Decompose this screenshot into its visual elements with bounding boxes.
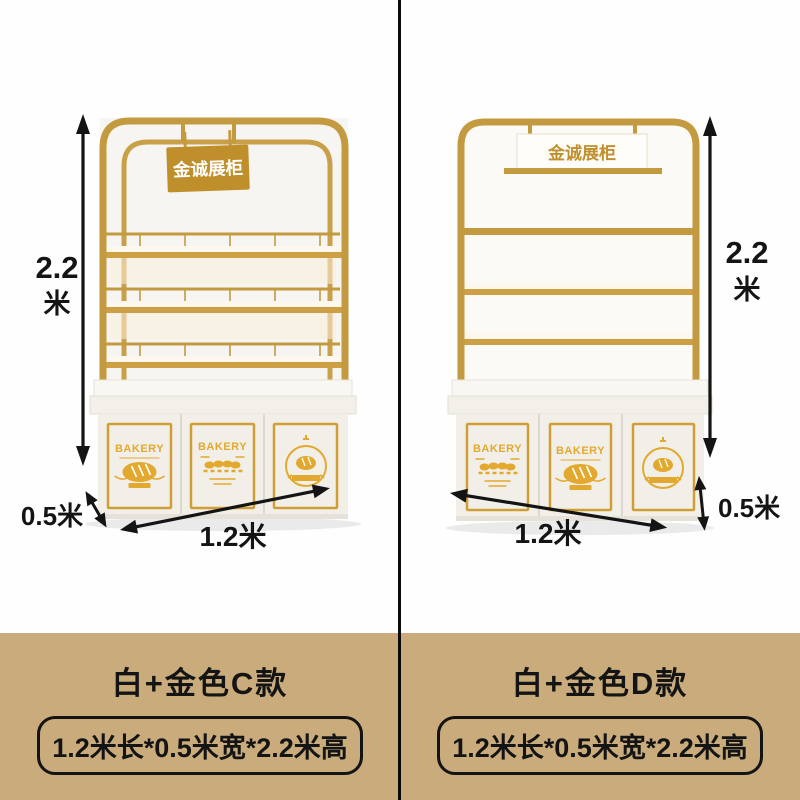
bakery-logo-text: BAKERY (198, 441, 247, 453)
spec-pill-d: 1.2米长*0.5米宽*2.2米高 (437, 716, 763, 775)
depth-dimension: 0.5米 (693, 475, 780, 531)
caption-style-d: 白+金色D款 1.2米长*0.5米宽*2.2米高 (400, 633, 800, 800)
height-value-label: 2.2 (35, 250, 78, 285)
style-title-c: 白+金色C款 (112, 658, 289, 703)
bakery-logo-text: BAKERY (473, 443, 522, 455)
spec-pill-c: 1.2米长*0.5米宽*2.2米高 (37, 716, 363, 775)
brand-sign-text: 金诚展柜 (547, 143, 616, 163)
display-shelf-style-d: 金诚展柜 BAKERY (400, 0, 800, 633)
display-shelf-style-c: 金诚展柜 BAKERY (0, 0, 400, 633)
shelf-tier-1 (461, 228, 696, 235)
width-label: 1.2米 (515, 518, 582, 549)
spec-text-c: 1.2米长*0.5米宽*2.2米高 (52, 733, 348, 763)
height-unit-label: 米 (734, 275, 761, 305)
width-label: 1.2米 (200, 521, 267, 552)
height-unit-label: 米 (44, 289, 71, 319)
bakery-logo-text: BAKERY (115, 443, 164, 455)
center-divider-line (398, 0, 401, 800)
base-cabinet: BAKERY BAKERY (446, 380, 714, 535)
style-title-d: 白+金色D款 (512, 658, 689, 703)
depth-label: 0.5米 (21, 501, 83, 531)
shelf-tier-3 (463, 332, 695, 345)
product-listing-image: 金诚展柜 BAKERY (0, 0, 800, 800)
caption-style-c: 白+金色C款 1.2米长*0.5米宽*2.2米高 (0, 633, 400, 800)
height-value-label: 2.2 (725, 235, 768, 270)
shelf-tier-2 (463, 282, 695, 295)
spec-text-d: 1.2米长*0.5米宽*2.2米高 (452, 733, 748, 763)
depth-label: 0.5米 (718, 493, 780, 523)
bakery-logo-text: BAKERY (556, 445, 605, 457)
height-dimension: 2.2 米 (35, 114, 90, 466)
height-dimension: 2.2 米 (703, 116, 769, 458)
brand-sign-text: 金诚展柜 (172, 158, 244, 180)
